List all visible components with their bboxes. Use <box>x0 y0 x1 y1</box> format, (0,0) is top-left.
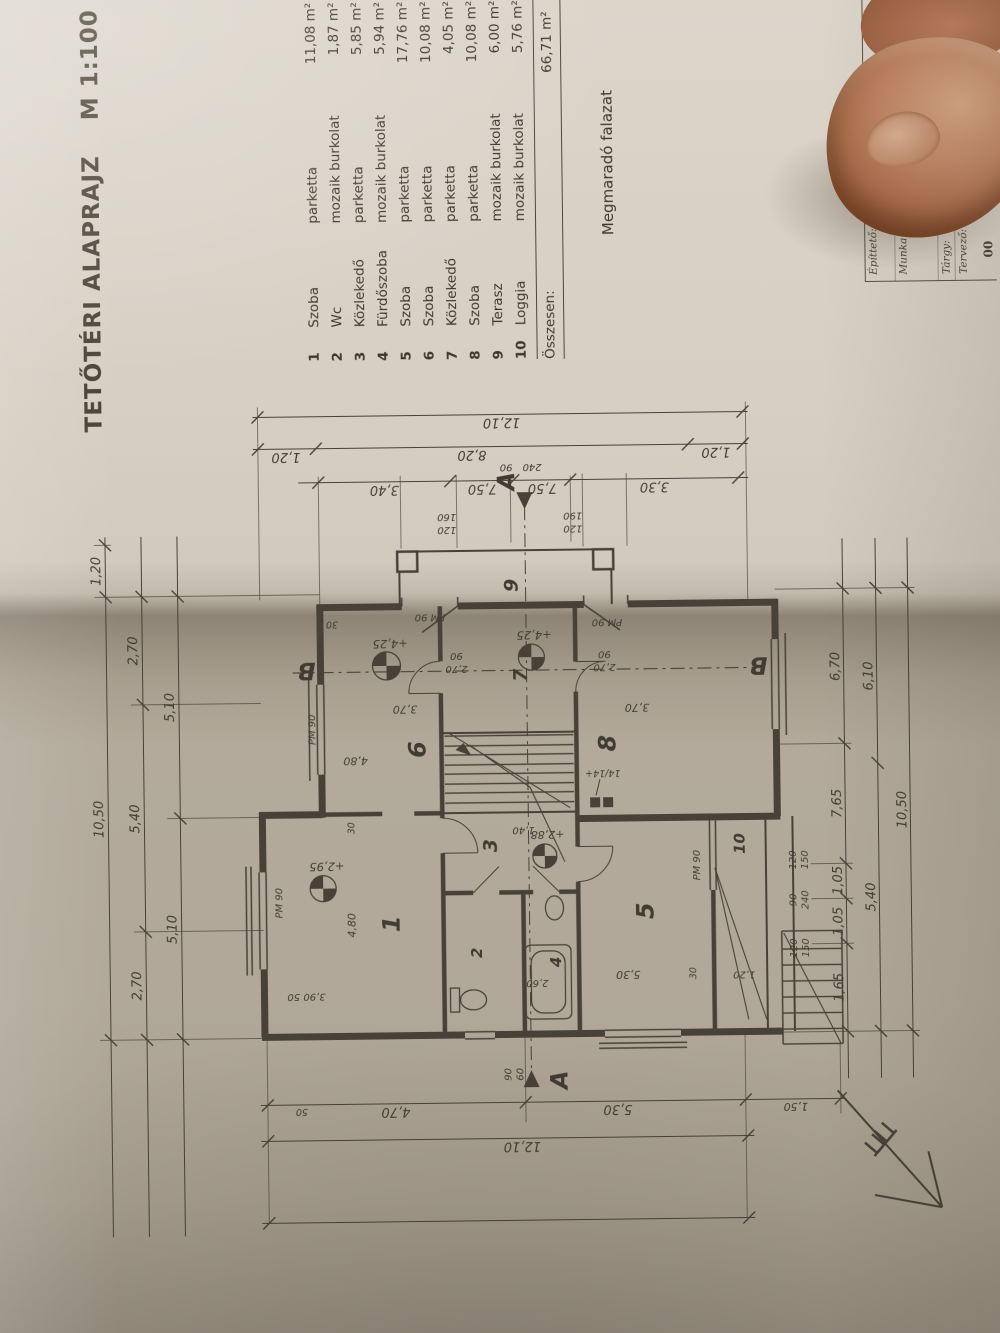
dim-label: 1,20 <box>701 444 730 459</box>
dim-label: 3,90 50 <box>287 991 325 1002</box>
bottom-dimension-labels: 1,65 1,05 1,05 7,65 6,70 5,40 6,10 10,50 <box>828 651 912 1002</box>
room-label: 1 <box>378 915 406 932</box>
window-spec: 120 <box>437 524 456 535</box>
dim-label: 3,70 <box>625 701 650 714</box>
left-dimension-labels: 4,70 5,30 1,50 50 12,10 <box>296 1099 809 1156</box>
window-spec: 240 <box>800 890 811 909</box>
lintel-label: PM 90 <box>592 616 623 627</box>
level-symbol: +2,95 <box>309 859 345 901</box>
room-label: 4 <box>547 957 565 969</box>
lintel-label: PM 90 <box>415 611 446 622</box>
dim-label: 4,80 <box>346 913 359 938</box>
dim-label: 1,05 <box>831 907 846 936</box>
dim-label: 2,70 <box>126 636 141 665</box>
window-spec: 120 <box>563 522 582 533</box>
top-dimension-labels: 10,50 1,20 2,70 5,40 2,70 5,10 5,10 <box>89 556 181 1001</box>
outer-walls <box>257 599 783 1037</box>
chimney <box>590 779 613 807</box>
lintel-label: PM 90 <box>274 888 285 919</box>
toilet-tank <box>450 988 459 1012</box>
dim-label: 12,10 <box>483 414 520 429</box>
dim-label: 3,30 <box>640 478 669 493</box>
svg-text:+2,95: +2,95 <box>309 859 344 873</box>
dim-label: 50 <box>296 1106 308 1117</box>
room-label: 6 <box>403 741 431 758</box>
svg-text:+2,88: +2,88 <box>531 828 565 841</box>
dim-label: 1,65 <box>832 973 847 1002</box>
chimney-label: 14/14+ <box>585 767 620 778</box>
section-label: A <box>545 1070 573 1091</box>
dim-label: 30 <box>346 822 357 834</box>
window-spec: 120 <box>789 938 800 957</box>
dim-label: 7,50 <box>528 480 557 495</box>
toilet <box>460 990 486 1010</box>
dim-label: 30 <box>326 618 338 629</box>
room-label: 9 <box>500 579 522 593</box>
dim-label: 1,05 <box>831 866 846 895</box>
section-label: B <box>749 651 768 679</box>
room-label: 3 <box>480 839 502 853</box>
svg-text:+4,25: +4,25 <box>516 628 551 642</box>
dim-label: 12,10 <box>504 1138 541 1153</box>
stairs <box>444 727 843 1048</box>
dim-label: 6,70 <box>828 652 843 681</box>
room-label: 7 <box>510 668 532 682</box>
opening-spec-labels: 120 160 120 190 120 150 90 240 120 150 9… <box>437 507 813 1082</box>
dim-label: 7,50 <box>468 481 497 496</box>
dim-label: 5,30 <box>616 968 641 981</box>
dim-label: 1,20 <box>271 449 300 464</box>
section-label: B <box>297 657 316 685</box>
dim-label: 7,65 <box>830 789 845 818</box>
window-spec: 120 <box>788 850 799 869</box>
north-arrow-icon <box>838 1089 942 1208</box>
svg-text:+4,25: +4,25 <box>373 637 408 651</box>
dim-label: 5,10 <box>166 915 181 944</box>
dim-label: 5,40 <box>128 804 143 833</box>
dim-label: 10,50 <box>92 801 107 838</box>
level-symbol: +2,88 <box>531 828 565 868</box>
lintel-label: PM 90 <box>692 850 703 881</box>
dim-label: 1,20 <box>89 557 104 586</box>
window-spec: 150 <box>800 850 811 869</box>
dim-label: 1,40 <box>512 824 534 835</box>
window-spec: 150 <box>801 938 812 957</box>
door-spec: 90 <box>598 648 611 659</box>
room-label: 5 <box>631 902 659 919</box>
dim-label: 5,10 <box>163 693 178 722</box>
dim-label: 4,70 <box>381 1104 410 1119</box>
dim-label: 1,20 <box>733 968 755 979</box>
window-spec: 190 <box>563 509 582 520</box>
dim-label: 1,50 <box>784 1100 809 1113</box>
dim-label: 6,10 <box>861 661 876 690</box>
dim-label: 3,40 <box>370 482 399 497</box>
floor-plan-drawing: A A B B +2,95 +2,88 <box>0 0 1000 1333</box>
room-label: 8 <box>593 735 621 752</box>
room-label: 2 <box>468 947 486 958</box>
sink <box>545 896 563 920</box>
room-label: 10 <box>731 833 749 854</box>
dim-label: 8,20 <box>457 447 486 462</box>
photo-of-floor-plan: TETŐTÉRI ALAPRAJZ M 1:100 1Szobaparketta… <box>0 0 1000 1333</box>
door-spec: 90 <box>450 650 463 661</box>
drawing-sheet: TETŐTÉRI ALAPRAJZ M 1:100 1Szobaparketta… <box>0 0 1000 1333</box>
dim-label: 5,40 <box>864 882 879 911</box>
dim-label: 10,50 <box>895 791 910 828</box>
terrace-pillars <box>397 549 613 572</box>
windows <box>243 593 790 1053</box>
dim-label: 2,60 <box>526 977 548 988</box>
dim-label: 2,70 <box>130 971 145 1000</box>
dim-label: 3,70 <box>393 703 418 716</box>
door-size-label: 90 <box>500 461 513 472</box>
level-symbol: +4,25 <box>372 637 408 680</box>
lintel-label: PM 90 <box>307 714 318 745</box>
door-size-label: 240 <box>522 461 541 472</box>
window-spec: 90 <box>503 1068 514 1081</box>
window-spec: 160 <box>437 511 456 522</box>
window-spec: 90 <box>788 893 799 906</box>
door-spec: 2,70 <box>593 661 615 672</box>
window-spec: 60 <box>515 1068 526 1081</box>
dim-label: 30 <box>688 967 699 979</box>
door-spec: 2,70 <box>445 663 467 674</box>
level-symbol: +4,25 <box>516 628 552 670</box>
dim-label: 4,80 <box>343 754 368 767</box>
dim-label: 5,30 <box>603 1101 632 1116</box>
